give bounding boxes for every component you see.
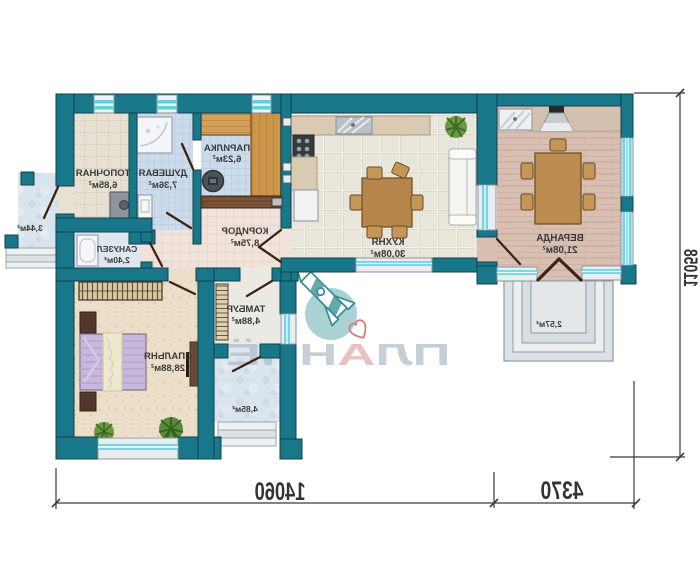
svg-text:ДУШЕВАЯ: ДУШЕВАЯ (138, 168, 187, 179)
svg-text:САНУЗЕЛ: САНУЗЕЛ (97, 244, 137, 254)
svg-text:30,08м²: 30,08м² (370, 249, 406, 260)
svg-text:6,23м²: 6,23м² (213, 154, 242, 165)
svg-text:21,08м²: 21,08м² (542, 245, 578, 256)
svg-text:СПАЛЬНЯ: СПАЛЬНЯ (144, 351, 192, 362)
svg-text:6,85м²: 6,85м² (89, 180, 118, 191)
svg-text:ТОПОЧНАЯ: ТОПОЧНАЯ (76, 168, 131, 179)
svg-text:7,36м²: 7,36м² (149, 180, 178, 191)
svg-text:КОРИДОР: КОРИДОР (221, 226, 269, 237)
svg-text:11058: 11058 (679, 249, 700, 287)
svg-text:28,88м²: 28,88м² (151, 363, 185, 374)
svg-text:4,85м²: 4,85м² (232, 404, 258, 414)
svg-text:ПАРИЛКА: ПАРИЛКА (204, 143, 250, 154)
svg-text:ПЛАННЁ: ПЛАННЁ (226, 337, 451, 372)
svg-text:4370: 4370 (541, 477, 584, 505)
svg-text:8,75м²: 8,75м² (231, 238, 260, 249)
svg-text:3,44м²: 3,44м² (17, 223, 43, 233)
svg-text:ВЕРАНДА: ВЕРАНДА (536, 233, 584, 244)
svg-text:2,57м²: 2,57м² (536, 319, 562, 329)
svg-text:14060: 14060 (255, 478, 306, 506)
svg-text:КУХНЯ: КУХНЯ (372, 237, 405, 248)
svg-text:2,40м²: 2,40м² (104, 255, 130, 265)
svg-text:4,88м²: 4,88м² (232, 316, 261, 327)
svg-text:ТАМБУР: ТАМБУР (226, 304, 265, 315)
